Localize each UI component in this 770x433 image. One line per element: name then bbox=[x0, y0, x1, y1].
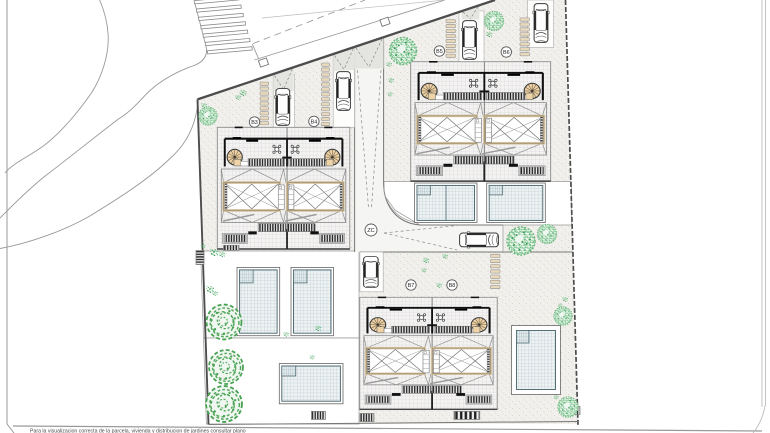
svg-text:B5: B5 bbox=[436, 49, 443, 55]
svg-text:ZC: ZC bbox=[367, 228, 374, 234]
svg-text:B3: B3 bbox=[251, 120, 258, 126]
svg-text:B7: B7 bbox=[408, 283, 415, 289]
svg-text:B6: B6 bbox=[503, 50, 510, 56]
svg-text:Para la visualizacion correcta: Para la visualizacion correcta de la par… bbox=[30, 429, 246, 433]
svg-text:B8: B8 bbox=[449, 283, 456, 289]
svg-text:B4: B4 bbox=[311, 119, 318, 125]
